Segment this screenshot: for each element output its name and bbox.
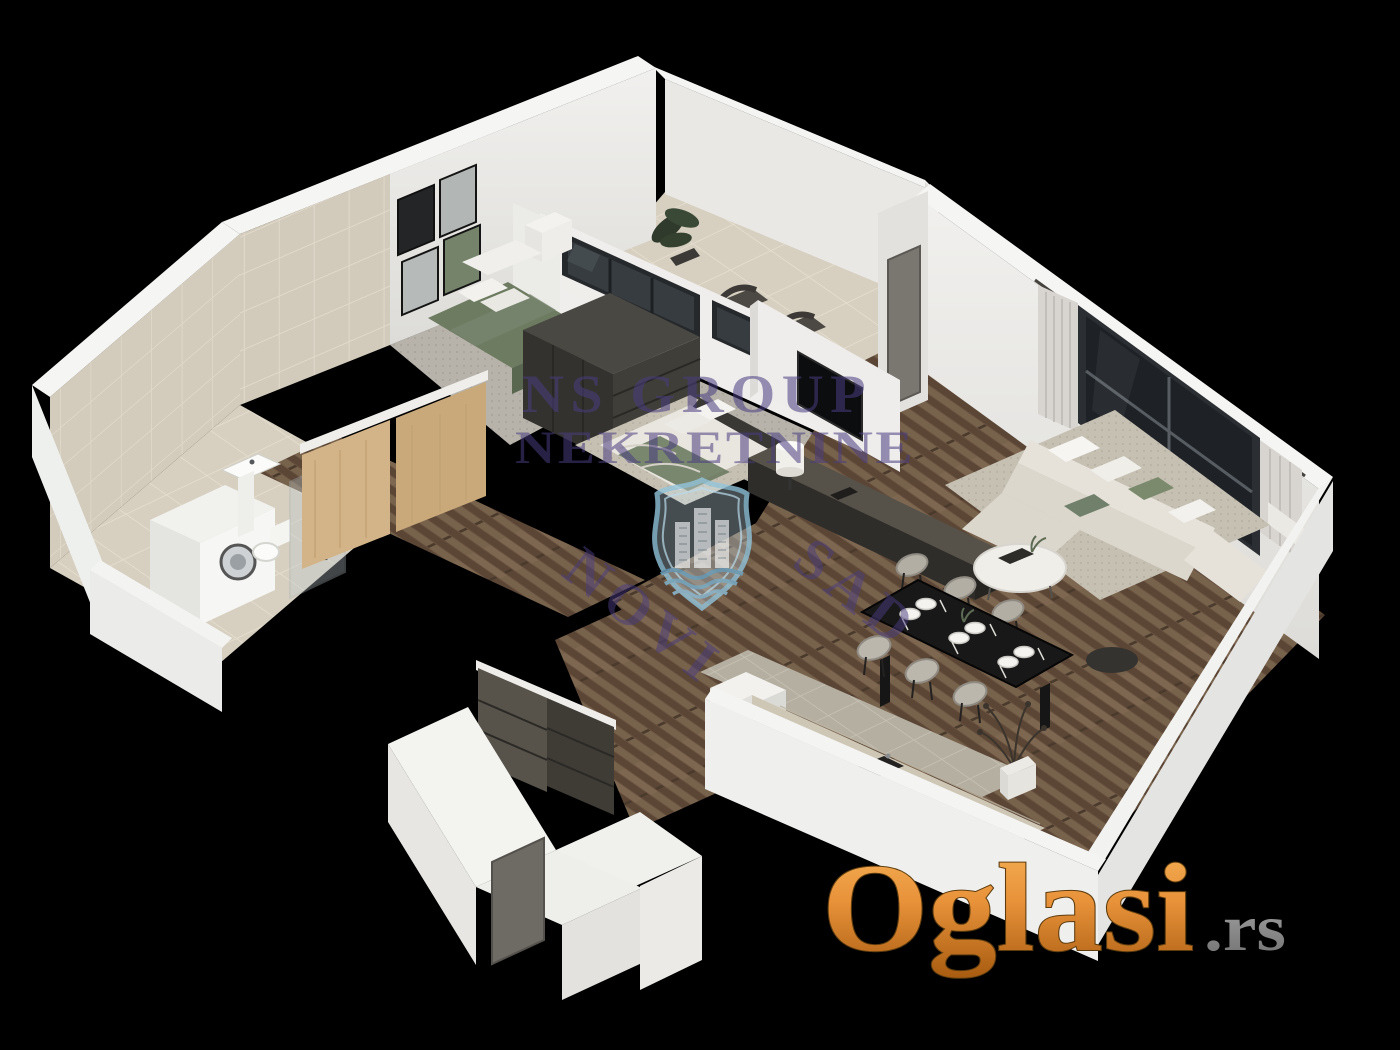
curtain-left <box>1038 285 1078 432</box>
black-ottoman <box>1086 647 1138 673</box>
watermark-line1: NS GROUP <box>522 364 872 424</box>
kitchen-faucet <box>886 754 891 759</box>
oglasi-logo-text: Oglasi <box>822 839 1194 978</box>
oglasi-logo-tld: .rs <box>1204 892 1286 965</box>
floor-plan-render: NS GROUP NEKRETNINE NOVI SAD <box>0 0 1400 1050</box>
floor-plan-screenshot: NS GROUP NEKRETNINE NOVI SAD <box>0 0 1400 1050</box>
table-leg-2 <box>1040 683 1050 732</box>
faucet <box>250 460 255 465</box>
watermark-line2: NEKRETNINE <box>515 422 915 474</box>
